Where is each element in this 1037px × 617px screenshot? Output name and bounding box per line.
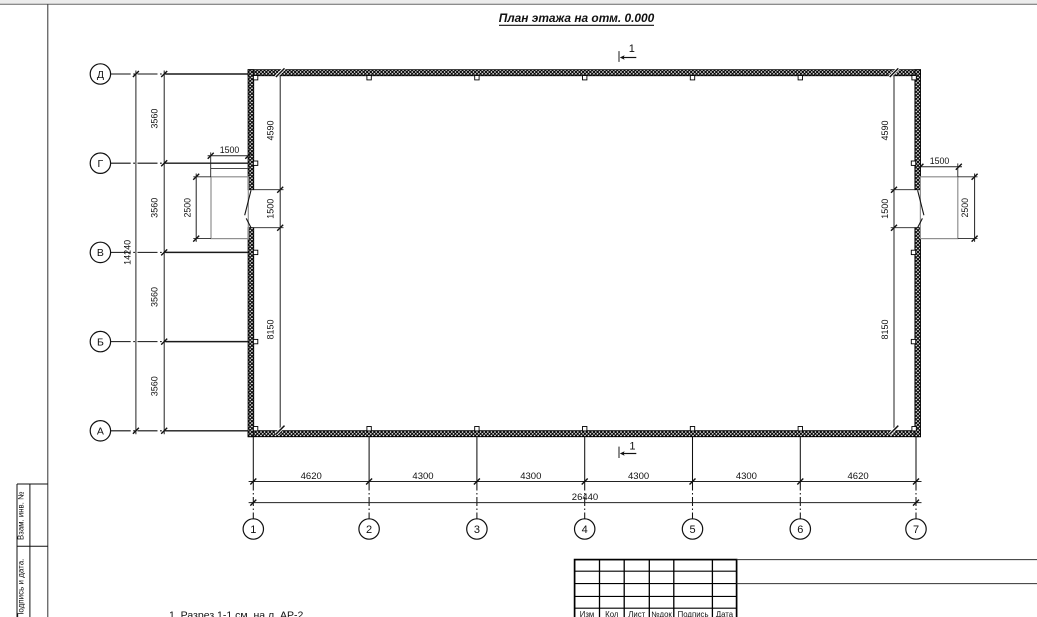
svg-text:Подпись: Подпись xyxy=(678,610,709,617)
svg-text:4300: 4300 xyxy=(520,471,541,482)
svg-text:1: 1 xyxy=(250,524,256,536)
svg-text:Кол: Кол xyxy=(605,610,619,617)
svg-text:Б: Б xyxy=(97,336,104,348)
svg-text:1500: 1500 xyxy=(880,199,890,219)
svg-text:3560: 3560 xyxy=(150,287,160,307)
svg-text:Дата: Дата xyxy=(716,610,734,617)
svg-text:Подпись и дата.: Подпись и дата. xyxy=(17,559,26,617)
svg-text:5: 5 xyxy=(689,524,695,536)
svg-text:4300: 4300 xyxy=(736,471,757,482)
svg-text:1500: 1500 xyxy=(930,156,950,166)
svg-text:Д: Д xyxy=(97,69,104,81)
svg-text:4620: 4620 xyxy=(301,471,322,482)
svg-text:7: 7 xyxy=(913,524,919,536)
svg-text:Г: Г xyxy=(98,158,104,170)
svg-text:4300: 4300 xyxy=(628,471,649,482)
svg-text:№док: №док xyxy=(651,610,672,617)
svg-text:4300: 4300 xyxy=(412,471,433,482)
svg-text:1: 1 xyxy=(629,43,635,55)
svg-text:Взам. инв. №: Взам. инв. № xyxy=(17,492,26,540)
svg-text:3560: 3560 xyxy=(150,198,160,218)
svg-text:2500: 2500 xyxy=(960,198,970,218)
svg-text:Изм: Изм xyxy=(580,610,595,617)
svg-text:План этажа на отм. 0.000: План этажа на отм. 0.000 xyxy=(499,11,655,25)
svg-text:8150: 8150 xyxy=(266,319,276,339)
svg-text:А: А xyxy=(97,426,104,438)
svg-text:14240: 14240 xyxy=(122,240,132,265)
svg-text:1. Разрез 1-1 см. на л. АР-2: 1. Разрез 1-1 см. на л. АР-2 xyxy=(169,610,303,617)
svg-text:Лист: Лист xyxy=(628,610,645,617)
svg-text:3560: 3560 xyxy=(150,376,160,396)
svg-text:В: В xyxy=(97,247,104,259)
svg-text:3560: 3560 xyxy=(150,109,160,129)
svg-text:2: 2 xyxy=(366,524,372,536)
svg-text:4620: 4620 xyxy=(848,471,869,482)
svg-text:8150: 8150 xyxy=(880,319,890,339)
svg-text:6: 6 xyxy=(797,524,803,536)
svg-text:3: 3 xyxy=(474,524,480,536)
svg-text:1500: 1500 xyxy=(266,199,276,219)
svg-text:1: 1 xyxy=(629,440,635,452)
svg-text:4590: 4590 xyxy=(880,120,890,140)
svg-text:4: 4 xyxy=(582,524,588,536)
svg-text:26440: 26440 xyxy=(572,492,598,503)
svg-text:1500: 1500 xyxy=(220,145,240,155)
svg-text:4590: 4590 xyxy=(266,120,276,140)
svg-text:2500: 2500 xyxy=(183,198,193,218)
